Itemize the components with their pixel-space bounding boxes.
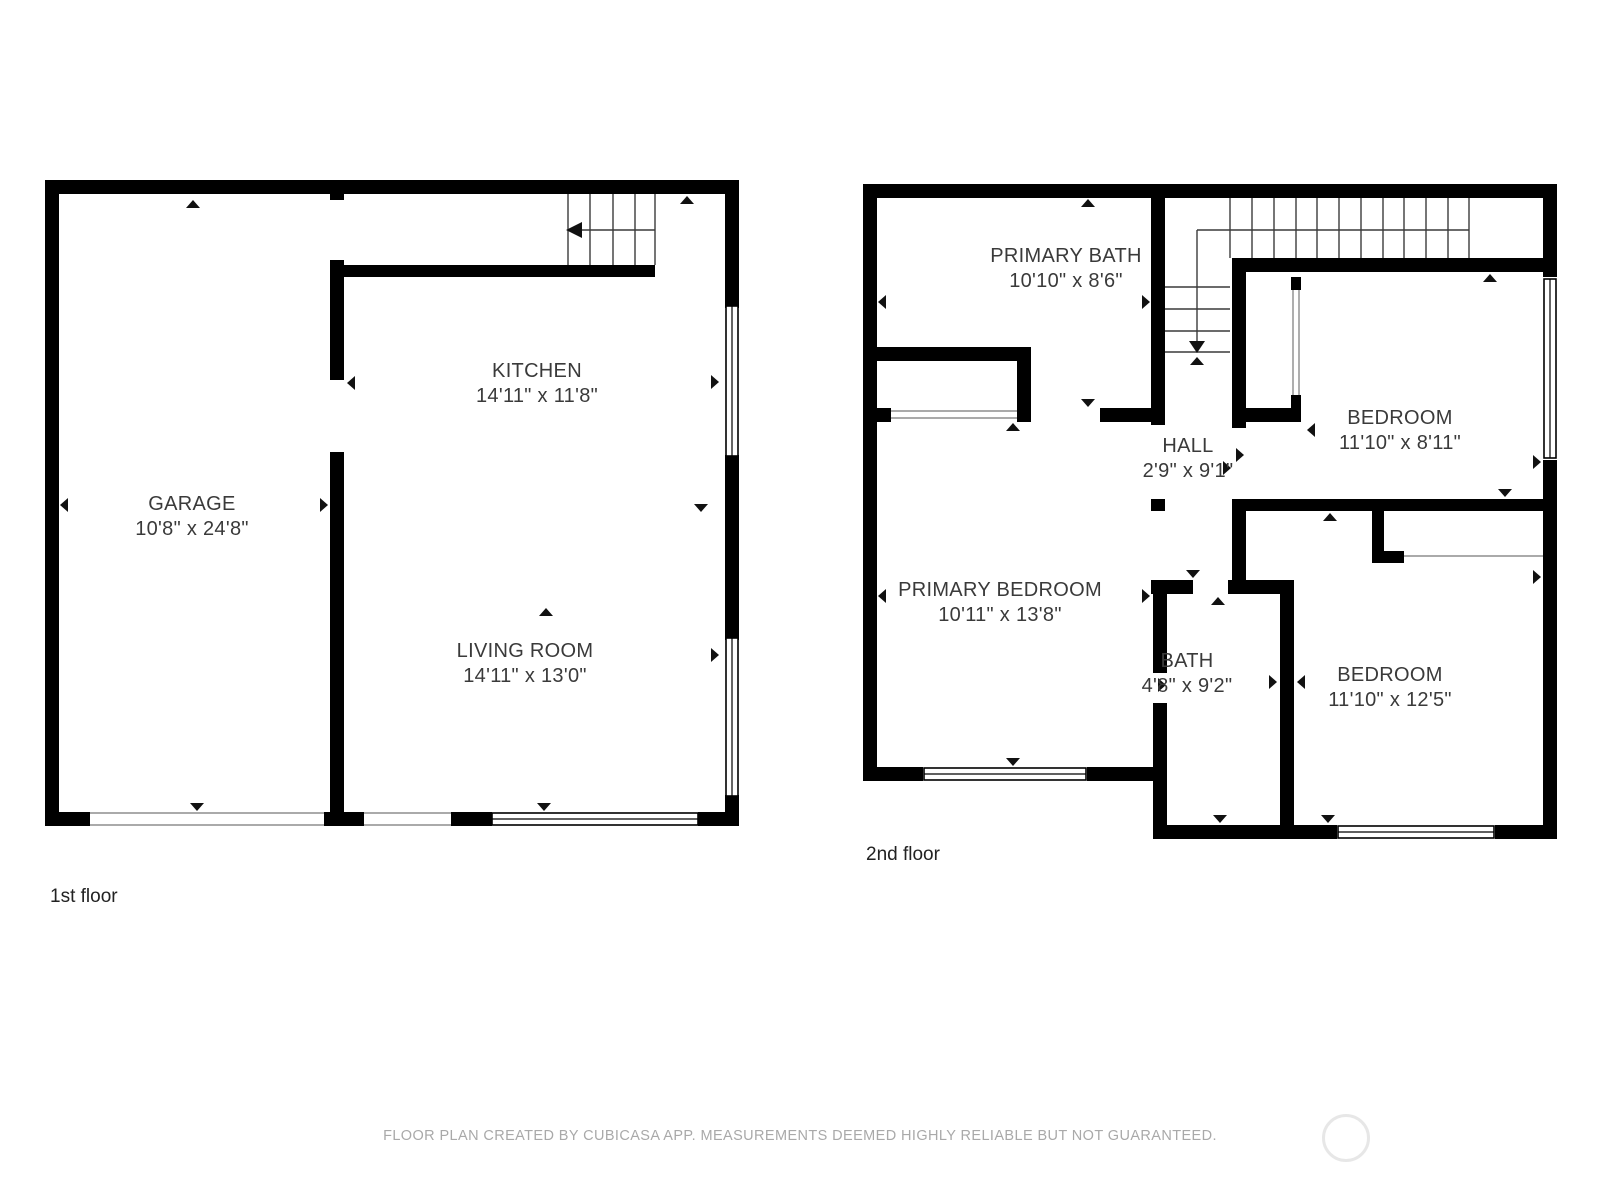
disclaimer-text: FLOOR PLAN CREATED BY CUBICASA APP. MEAS…	[0, 1128, 1600, 1144]
second-floor-plan	[863, 184, 1557, 839]
room-dimensions: 4'8" x 9'2"	[1142, 674, 1233, 699]
second-floor-stairs	[1165, 198, 1469, 353]
room-label-garage: GARAGE 10'8" x 24'8"	[135, 492, 249, 542]
room-dimensions: 11'10" x 8'11"	[1339, 431, 1461, 456]
room-name: PRIMARY BATH	[990, 244, 1141, 269]
room-label-kitchen: KITCHEN 14'11" x 11'8"	[476, 359, 598, 409]
room-label-bedroom-upper: BEDROOM 11'10" x 8'11"	[1339, 406, 1461, 456]
room-name: LIVING ROOM	[457, 639, 594, 664]
room-dimensions: 14'11" x 13'0"	[457, 664, 594, 689]
room-label-hall: HALL 2'9" x 9'1"	[1143, 434, 1234, 484]
room-dimensions: 10'10" x 8'6"	[990, 269, 1141, 294]
room-name: BEDROOM	[1339, 406, 1461, 431]
first-floor-openings	[90, 813, 451, 825]
room-label-bath: BATH 4'8" x 9'2"	[1142, 649, 1233, 699]
room-label-primary-bedroom: PRIMARY BEDROOM 10'11" x 13'8"	[898, 578, 1102, 628]
room-dimensions: 2'9" x 9'1"	[1143, 459, 1234, 484]
room-name: GARAGE	[135, 492, 249, 517]
second-floor-walls	[863, 184, 1557, 839]
room-name: KITCHEN	[476, 359, 598, 384]
first-floor-caption: 1st floor	[50, 886, 118, 908]
room-name: PRIMARY BEDROOM	[898, 578, 1102, 603]
room-name: BATH	[1142, 649, 1233, 674]
room-name: BEDROOM	[1328, 663, 1452, 688]
floor-plan-drawing	[0, 0, 1600, 1200]
room-label-primary-bath: PRIMARY BATH 10'10" x 8'6"	[990, 244, 1141, 294]
room-label-living-room: LIVING ROOM 14'11" x 13'0"	[457, 639, 594, 689]
second-floor-caption: 2nd floor	[866, 844, 940, 866]
room-dimensions: 10'8" x 24'8"	[135, 517, 249, 542]
first-floor-stairs	[566, 194, 655, 265]
room-dimensions: 10'11" x 13'8"	[898, 603, 1102, 628]
room-label-bedroom-lower: BEDROOM 11'10" x 12'5"	[1328, 663, 1452, 713]
room-dimensions: 11'10" x 12'5"	[1328, 688, 1452, 713]
room-name: HALL	[1143, 434, 1234, 459]
stair-direction-arrow	[1189, 341, 1205, 353]
room-dimensions: 14'11" x 11'8"	[476, 384, 598, 409]
